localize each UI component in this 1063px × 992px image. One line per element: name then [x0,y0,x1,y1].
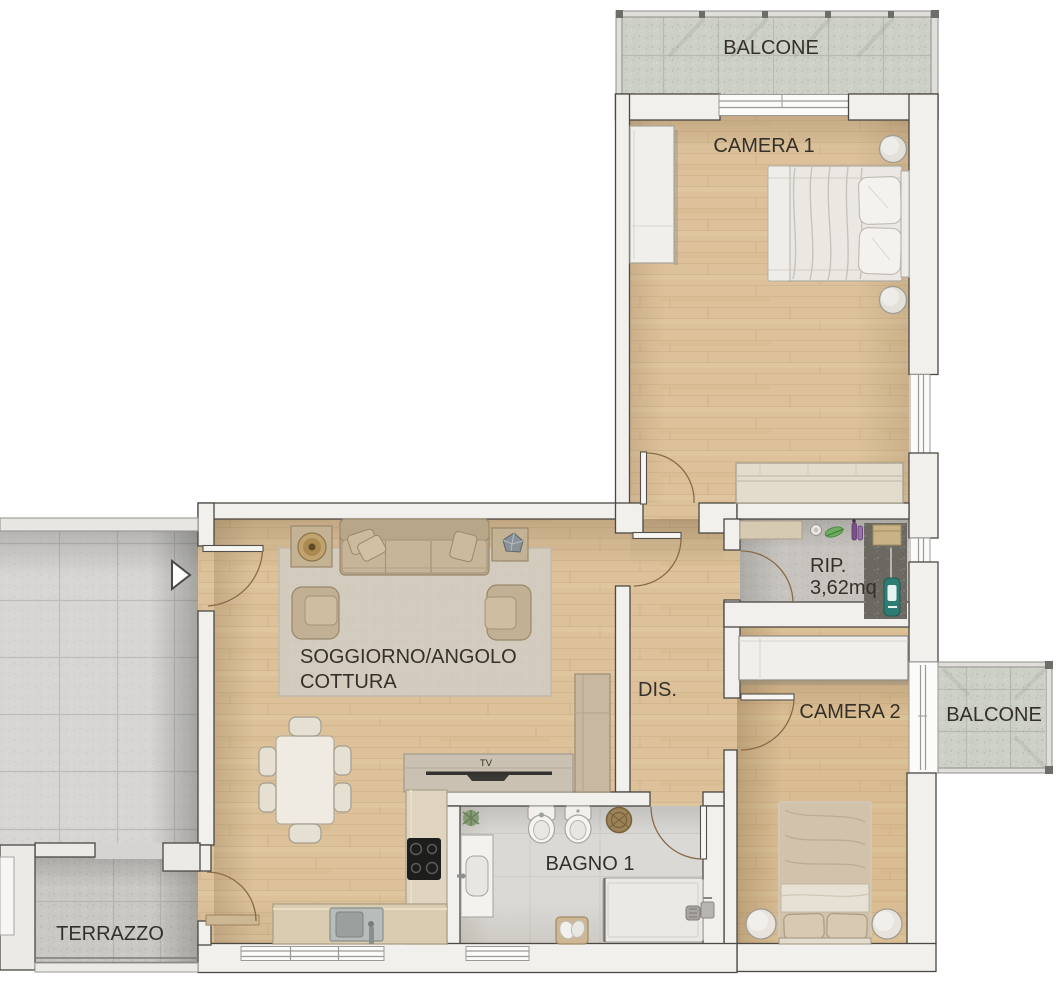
svg-text:BAGNO 1: BAGNO 1 [546,853,635,875]
svg-text:CAMERA 1: CAMERA 1 [713,135,814,157]
svg-text:CAMERA 2: CAMERA 2 [799,701,900,723]
svg-text:TERRAZZO: TERRAZZO [56,923,164,945]
svg-text:3,62mq: 3,62mq [810,577,877,599]
svg-text:COTTURA: COTTURA [300,671,397,693]
svg-text:BALCONE: BALCONE [946,704,1042,726]
svg-text:SOGGIORNO/ANGOLO: SOGGIORNO/ANGOLO [300,646,517,668]
svg-text:TV: TV [480,758,493,769]
svg-text:BALCONE: BALCONE [723,37,819,59]
svg-text:RIP.: RIP. [810,555,846,577]
svg-text:DIS.: DIS. [638,679,677,701]
